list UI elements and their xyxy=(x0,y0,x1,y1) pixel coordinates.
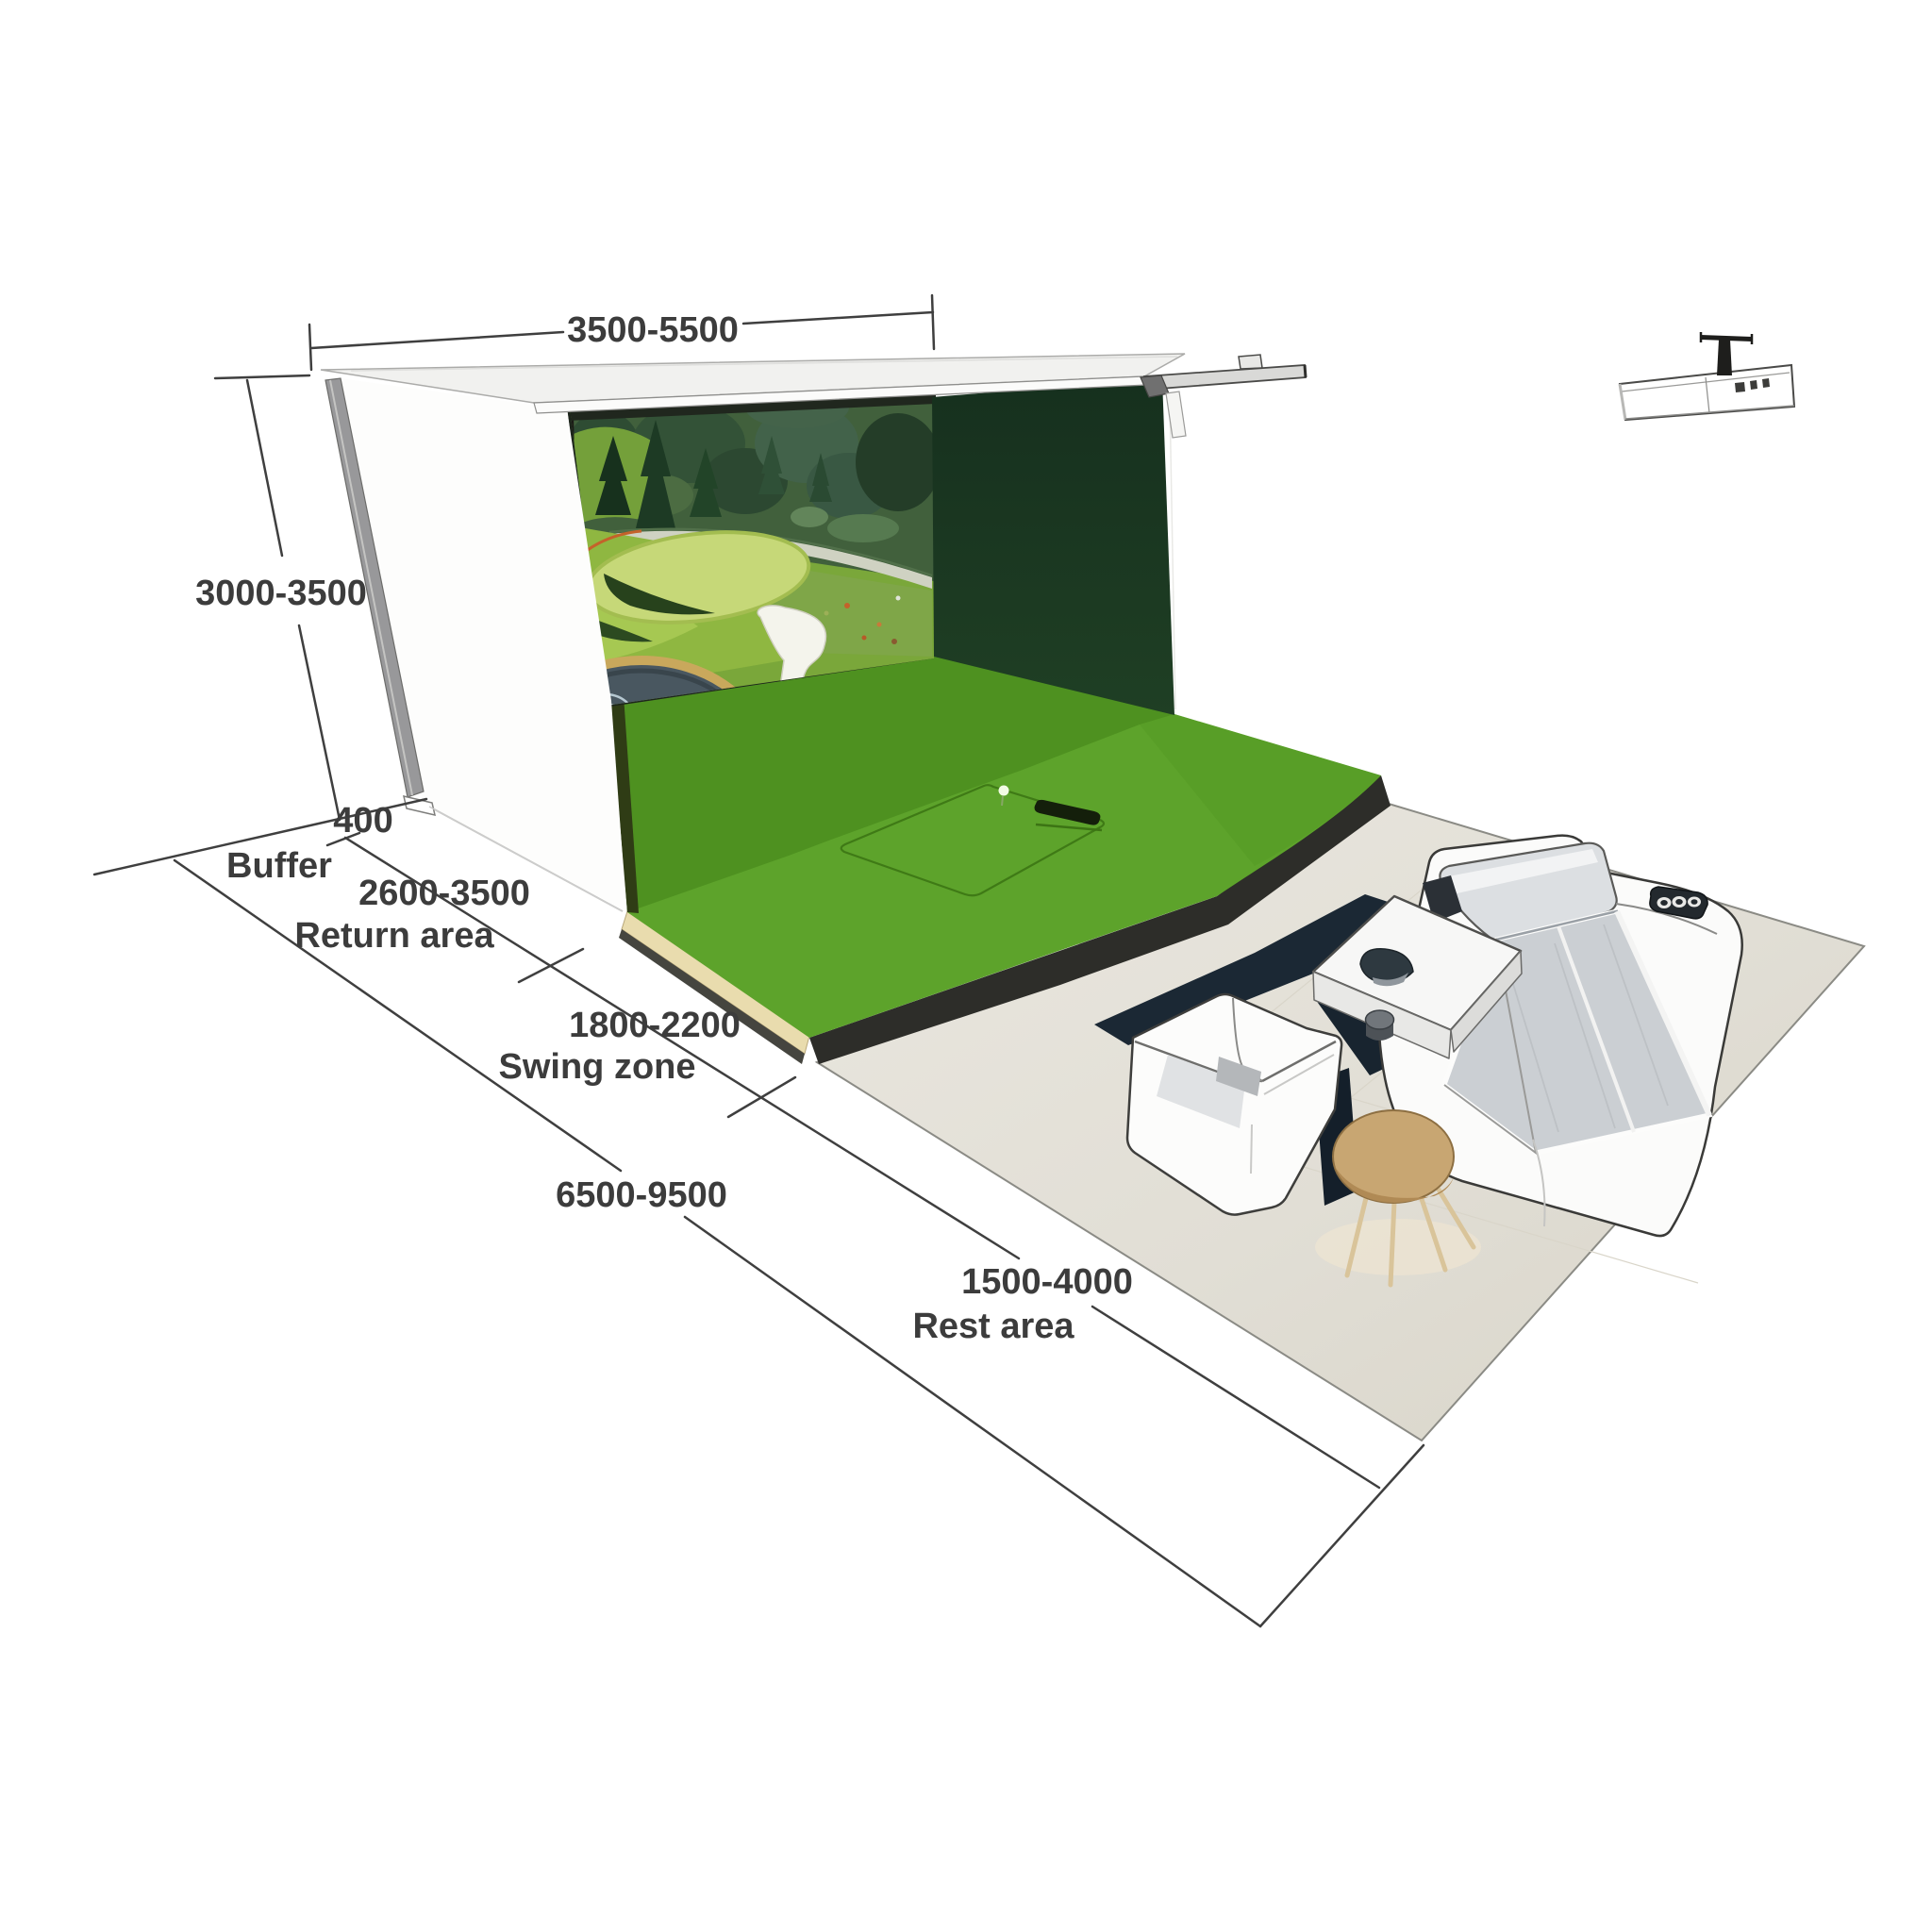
svg-text:3000-3500: 3000-3500 xyxy=(195,574,367,613)
svg-text:400: 400 xyxy=(333,801,392,841)
svg-text:2600-3500: 2600-3500 xyxy=(358,874,530,913)
svg-text:Rest area: Rest area xyxy=(912,1307,1074,1346)
svg-text:1500-4000: 1500-4000 xyxy=(961,1262,1133,1302)
svg-text:Buffer: Buffer xyxy=(226,846,332,886)
svg-text:6500-9500: 6500-9500 xyxy=(556,1175,727,1215)
svg-text:Return area: Return area xyxy=(294,916,494,956)
svg-text:1800-2200: 1800-2200 xyxy=(569,1006,741,1045)
svg-text:3500-5500: 3500-5500 xyxy=(567,310,739,350)
svg-text:Swing zone: Swing zone xyxy=(499,1047,696,1087)
